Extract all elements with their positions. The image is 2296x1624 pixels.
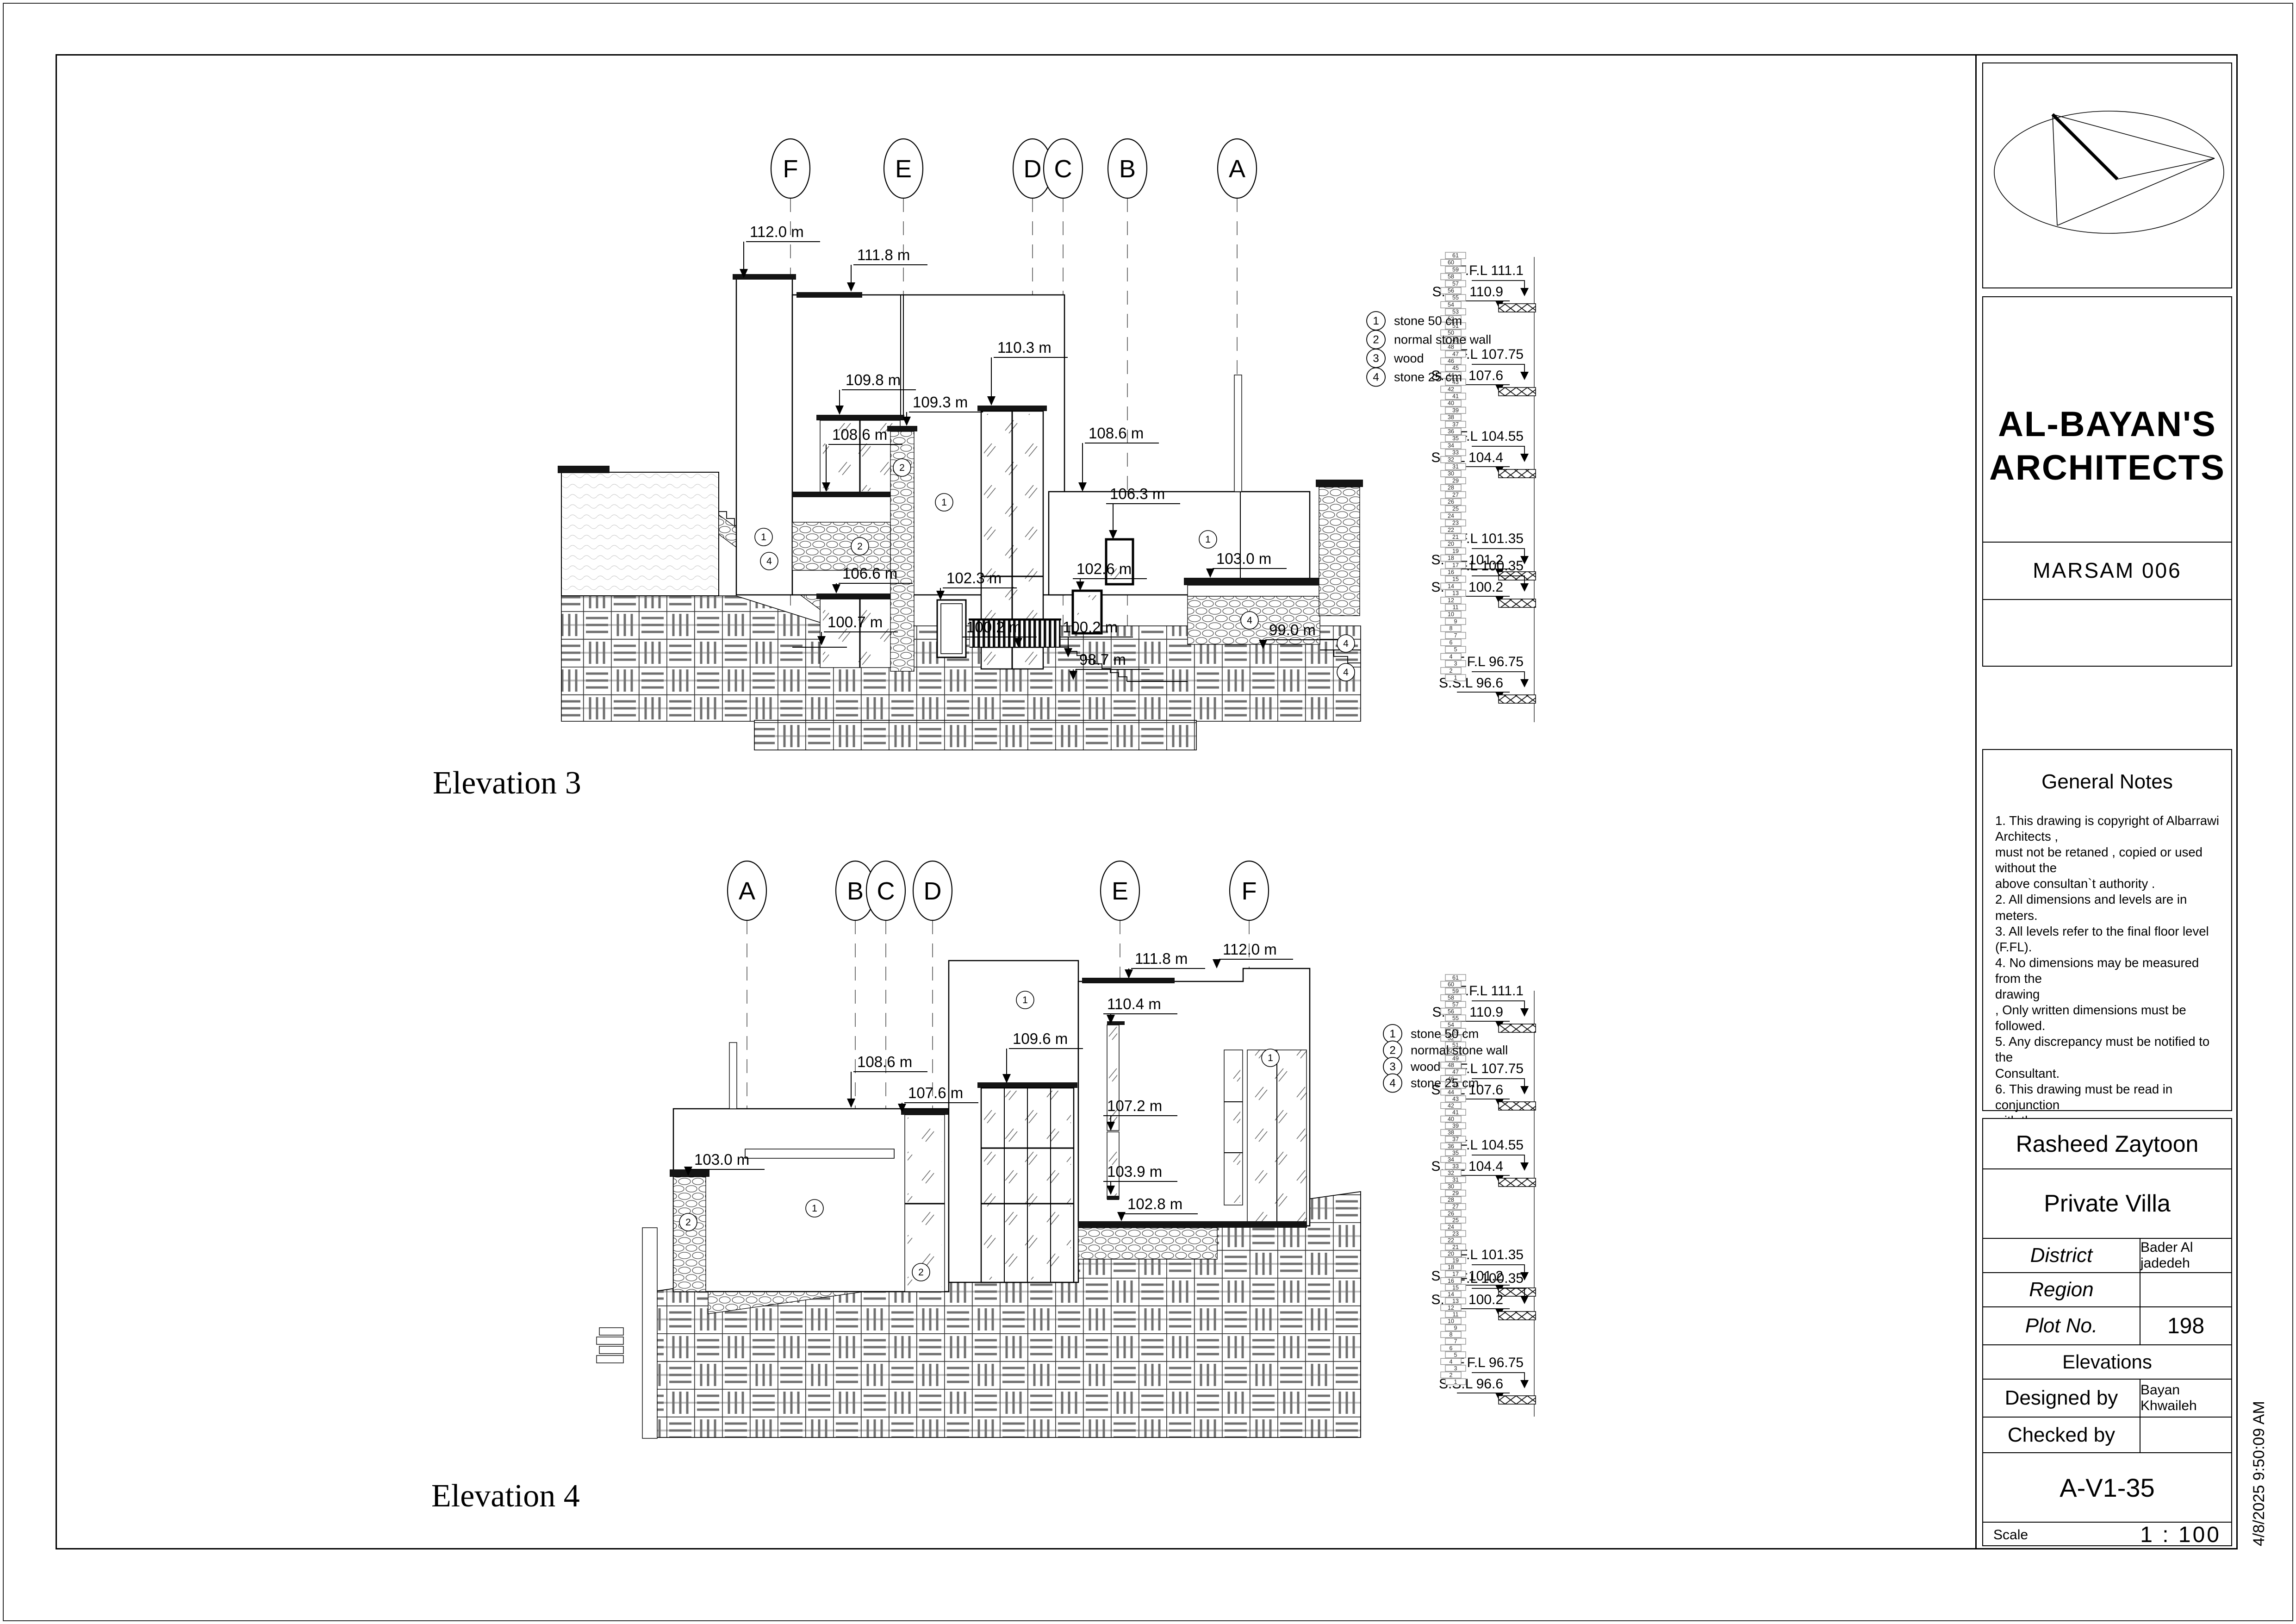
dimension-arrow — [847, 282, 855, 292]
riser-number: 47 — [1452, 351, 1459, 357]
sheet-title-row: Elevations — [1983, 1344, 2231, 1379]
riser-number: 57 — [1452, 1001, 1459, 1008]
dimension-arrow — [1125, 969, 1133, 979]
slab-hatch — [1499, 1288, 1536, 1296]
riser-number: 36 — [1448, 1143, 1454, 1149]
riser-number: 10 — [1448, 611, 1454, 618]
divider — [1983, 599, 2231, 600]
elevation3-title: Elevation 3 — [433, 765, 581, 802]
riser-number: 1 — [1454, 675, 1457, 681]
riser-number: 56 — [1448, 1008, 1454, 1015]
title-block: AL-BAYAN'S ARCHITECTS MARSAM 006 General… — [1975, 54, 2238, 1549]
riser-number: 22 — [1448, 527, 1454, 533]
riser-number: 16 — [1448, 1278, 1454, 1284]
riser-number: 21 — [1452, 534, 1459, 540]
riser-number: 11 — [1453, 604, 1459, 611]
project-name: Private Villa — [2044, 1190, 2171, 1218]
riser-number: 26 — [1448, 499, 1454, 505]
district-label: District — [1983, 1239, 2140, 1272]
ffl-arrow — [1520, 1162, 1529, 1171]
drawing-number-row: A-V1-35 — [1983, 1452, 2231, 1522]
legend-key-number: 2 — [1373, 334, 1379, 346]
riser-number: 26 — [1448, 1210, 1454, 1217]
print-timestamp: 4/8/2025 9:50:09 AM — [2250, 1401, 2268, 1546]
dimension-label: 108.6 m — [1089, 425, 1144, 442]
riser-number: 37 — [1452, 421, 1459, 428]
ffl-arrow — [1520, 1380, 1529, 1388]
riser-number: 6 — [1450, 639, 1453, 646]
dimension-label: 106.6 m — [842, 565, 897, 582]
dimension-label: 98.7 m — [1079, 651, 1126, 668]
grid-bubble-label: B — [847, 877, 864, 905]
elev4-building — [670, 961, 1310, 1292]
dimension-label: 102.6 m — [1076, 560, 1132, 577]
dimension-label: 103.9 m — [1107, 1163, 1162, 1180]
riser-number: 38 — [1448, 414, 1454, 421]
elev3-door — [937, 600, 966, 657]
legend-label: stone 50 cm — [1411, 1027, 1479, 1041]
riser-number: 17 — [1452, 1271, 1459, 1277]
riser-number: 5 — [1454, 1352, 1457, 1358]
firm-name-line1: AL-BAYAN'S — [1983, 403, 2231, 446]
legend-key-number: 4 — [1373, 371, 1379, 384]
grid-bubble-label: A — [1229, 155, 1245, 183]
grid-bubble-label: C — [877, 877, 895, 905]
slab-hatch — [1499, 1312, 1536, 1320]
riser-number: 57 — [1452, 281, 1459, 287]
dimension-label: 109.6 m — [1013, 1030, 1068, 1047]
firm-name: AL-BAYAN'S ARCHITECTS — [1983, 403, 2231, 490]
ffl-label: F.F.L 111.1 — [1458, 983, 1524, 999]
riser-number: 32 — [1448, 456, 1454, 463]
riser-number: 3 — [1454, 1365, 1457, 1372]
riser-number: 54 — [1448, 301, 1454, 308]
elevation4-title: Elevation 4 — [431, 1478, 580, 1515]
riser-number: 59 — [1452, 266, 1459, 273]
material-tag-number: 2 — [918, 1267, 924, 1278]
riser-number: 55 — [1452, 1015, 1459, 1021]
riser-number: 42 — [1448, 386, 1454, 393]
slab-hatch — [1499, 304, 1536, 312]
dimension-label: 102.8 m — [1127, 1195, 1182, 1212]
dimension-label: 112.0 m — [750, 223, 804, 240]
grid-bubble-label: C — [1054, 155, 1072, 183]
elev3-stone-band — [792, 522, 890, 570]
riser-number: 35 — [1452, 1149, 1459, 1156]
material-tag-number: 2 — [685, 1217, 691, 1228]
legend-key-number: 4 — [1389, 1077, 1395, 1090]
ffl-arrow — [1520, 1008, 1529, 1017]
riser-number: 61 — [1452, 252, 1459, 259]
riser-number: 39 — [1452, 407, 1459, 413]
riser-number: 35 — [1452, 435, 1459, 442]
grid-bubble-label: F — [1242, 877, 1257, 905]
riser-number: 27 — [1452, 1204, 1459, 1210]
grid-bubble-label: B — [1119, 155, 1136, 183]
slab-hatch — [1499, 695, 1536, 703]
riser-number: 3 — [1454, 661, 1457, 667]
slab-hatch — [1499, 387, 1536, 396]
riser-number: 55 — [1452, 294, 1459, 301]
riser-number: 30 — [1448, 470, 1454, 477]
slab-hatch — [1499, 1178, 1536, 1187]
riser-number: 28 — [1448, 1197, 1454, 1203]
scale-row: Scale 1 : 100 — [1983, 1522, 2231, 1547]
riser-number: 11 — [1453, 1312, 1459, 1318]
dimension-label: 102.3 m — [946, 569, 1002, 587]
riser-number: 6 — [1450, 1345, 1453, 1351]
riser-number: 9 — [1454, 1325, 1457, 1331]
riser-number: 29 — [1452, 1190, 1459, 1197]
dimension-label: 110.4 m — [1107, 995, 1161, 1012]
riser-number: 25 — [1452, 1217, 1459, 1224]
riser-number: 27 — [1452, 492, 1459, 498]
dimension-label: 112.0 m — [1223, 941, 1277, 958]
designed-by-label: Designed by — [1983, 1380, 2140, 1417]
info-table: Rasheed Zaytoon Private Villa District B… — [1982, 1118, 2232, 1546]
ffl-arrow — [1520, 288, 1529, 296]
riser-number: 17 — [1452, 562, 1459, 568]
elev3-window-a-header — [816, 415, 904, 420]
riser-number: 5 — [1454, 646, 1457, 653]
material-tag-number: 1 — [1268, 1053, 1273, 1063]
ffl-label: F.F.L 96.75 — [1456, 654, 1524, 669]
dimension-label: 103.0 m — [694, 1151, 749, 1168]
legend-label: normal stone wall — [1411, 1043, 1508, 1057]
riser-number: 18 — [1448, 1264, 1454, 1271]
material-tag-number: 1 — [812, 1203, 817, 1214]
riser-number: 58 — [1448, 995, 1454, 1001]
general-notes-title: General Notes — [1983, 770, 2231, 793]
riser-number: 23 — [1452, 1230, 1459, 1237]
material-tag-number: 1 — [761, 532, 766, 543]
riser-number: 18 — [1448, 555, 1454, 562]
riser-number: 1 — [1454, 1379, 1457, 1385]
legend-label: wood — [1394, 351, 1424, 365]
riser-number: 61 — [1452, 974, 1459, 981]
riser-number: 41 — [1452, 1109, 1459, 1116]
riser-number: 34 — [1448, 442, 1454, 449]
material-tag-number: 1 — [1022, 995, 1028, 1006]
riser-number: 30 — [1448, 1183, 1454, 1190]
dimension-label: 99.0 m — [1269, 621, 1316, 638]
dimension-label: 110.3 m — [997, 339, 1052, 356]
material-tag-number: 2 — [857, 541, 863, 552]
region-label: Region — [1983, 1273, 2140, 1306]
dimension-label: 107.6 m — [908, 1084, 963, 1101]
riser-number: 36 — [1448, 428, 1454, 435]
material-tag-number: 4 — [1343, 667, 1349, 678]
riser-number: 60 — [1448, 981, 1454, 988]
riser-number: 24 — [1448, 1224, 1454, 1230]
riser-number: 28 — [1448, 485, 1454, 491]
district-row: District Bader Al jadedeh — [1983, 1238, 2231, 1272]
riser-number: 14 — [1448, 1291, 1454, 1298]
material-tag-number: 4 — [766, 556, 772, 567]
riser-number: 38 — [1448, 1130, 1454, 1136]
slab-hatch — [1499, 599, 1536, 607]
slab-hatch — [1499, 1102, 1536, 1110]
riser-number: 9 — [1454, 618, 1457, 625]
riser-number: 34 — [1448, 1156, 1454, 1163]
ffl-arrow — [1520, 583, 1529, 592]
riser-number: 20 — [1448, 541, 1454, 547]
riser-number: 12 — [1448, 597, 1454, 604]
riser-number: 19 — [1452, 1257, 1459, 1264]
slab-hatch — [1499, 469, 1536, 478]
checked-by-label: Checked by — [1983, 1418, 2140, 1452]
grid-bubble-label: F — [783, 155, 798, 183]
firm-box: AL-BAYAN'S ARCHITECTS MARSAM 006 — [1982, 296, 2232, 667]
slab-hatch — [1499, 1024, 1536, 1032]
riser-number: 48 — [1448, 1062, 1454, 1068]
riser-number: 58 — [1448, 274, 1454, 280]
ffl-arrow — [1520, 454, 1529, 462]
riser-number: 56 — [1448, 287, 1454, 294]
dimension-arrow — [847, 1099, 855, 1108]
ffl-arrow — [1520, 1296, 1529, 1304]
riser-number: 29 — [1452, 477, 1459, 484]
plot-value: 198 — [2140, 1307, 2231, 1344]
legend-key-number: 1 — [1389, 1028, 1395, 1040]
riser-number: 41 — [1452, 393, 1459, 400]
riser-number: 10 — [1448, 1318, 1454, 1324]
slab-hatch — [1499, 1396, 1536, 1404]
checked-by-value — [2140, 1418, 2231, 1452]
riser-number: 13 — [1452, 590, 1459, 597]
elevation4-drawing: 111.8 m112.0 m110.4 m109.6 m108.6 m107.6… — [579, 856, 1550, 1472]
riser-number: 43 — [1452, 1096, 1459, 1102]
elev4-stone-pier — [673, 1177, 706, 1292]
scale-value: 1 : 100 — [2140, 1523, 2221, 1547]
plot-label: Plot No. — [1983, 1307, 2140, 1344]
legend-label: stone 25 cm — [1394, 370, 1462, 384]
riser-number: 13 — [1452, 1298, 1459, 1304]
ffl-label: F.F.L 96.75 — [1456, 1355, 1524, 1370]
dimension-label: 111.8 m — [1135, 950, 1188, 967]
riser-number: 22 — [1448, 1237, 1454, 1243]
riser-number: 16 — [1448, 569, 1454, 575]
riser-number: 20 — [1448, 1251, 1454, 1257]
dimension-label: 111.8 m — [857, 246, 910, 263]
riser-number: 40 — [1448, 1116, 1454, 1123]
riser-number: 33 — [1452, 450, 1459, 456]
riser-number: 15 — [1452, 576, 1459, 582]
dimension-label: 106.3 m — [1110, 485, 1165, 502]
riser-number: 21 — [1452, 1244, 1459, 1250]
legend-label: normal stone wall — [1394, 333, 1491, 347]
riser-number: 32 — [1448, 1170, 1454, 1176]
riser-number: 12 — [1448, 1305, 1454, 1311]
riser-number: 4 — [1450, 653, 1453, 660]
material-tag-number: 1 — [1205, 534, 1211, 545]
riser-number: 15 — [1452, 1284, 1459, 1291]
dimension-label: 109.3 m — [913, 394, 968, 411]
drawing-number: A-V1-35 — [2060, 1473, 2154, 1503]
legend-key-number: 3 — [1373, 352, 1379, 365]
ffl-arrow — [1520, 679, 1529, 687]
riser-number: 46 — [1448, 358, 1454, 364]
legend-key-number: 3 — [1389, 1061, 1395, 1073]
region-row: Region — [1983, 1272, 2231, 1306]
material-tag-number: 2 — [899, 462, 905, 473]
riser-number: 25 — [1452, 506, 1459, 512]
dimension-label: 100.7 m — [828, 613, 883, 631]
designed-by-value: Bayan Khwaileh — [2140, 1380, 2231, 1417]
dimension-label: 100.2 m — [1063, 618, 1118, 636]
dimension-label: 108.6 m — [832, 426, 887, 443]
riser-number: 7 — [1454, 1338, 1457, 1345]
riser-number: 39 — [1452, 1123, 1459, 1129]
compass-logo-icon — [1983, 63, 2231, 287]
riser-number: 2 — [1450, 668, 1453, 674]
legend-label: stone 50 cm — [1394, 314, 1462, 328]
dimension-arrow — [1078, 482, 1087, 492]
riser-number: 8 — [1450, 1331, 1453, 1338]
riser-number: 24 — [1448, 512, 1454, 519]
legend-label: wood — [1410, 1060, 1441, 1074]
checked-by-row: Checked by — [1983, 1417, 2231, 1452]
legend-key-number: 1 — [1373, 315, 1379, 327]
dimension-arrow — [1213, 959, 1221, 968]
ffl-arrow — [1520, 1086, 1529, 1094]
material-tag-number: 1 — [941, 497, 947, 508]
legend-key-number: 2 — [1389, 1044, 1395, 1057]
grid-bubble-label: E — [1112, 877, 1128, 905]
plot-row: Plot No. 198 — [1983, 1306, 2231, 1344]
elevation3-drawing: 112.0 m111.8 m110.3 m109.8 m109.3 m108.6… — [532, 153, 1550, 773]
riser-number: 59 — [1452, 988, 1459, 994]
designed-by-row: Designed by Bayan Khwaileh — [1983, 1379, 2231, 1417]
riser-number: 33 — [1452, 1163, 1459, 1169]
riser-number: 60 — [1448, 259, 1454, 266]
material-tag-number: 4 — [1247, 615, 1252, 626]
riser-number: 31 — [1452, 463, 1459, 470]
riser-number: 40 — [1448, 400, 1454, 406]
legend-label: stone 25 cm — [1411, 1076, 1479, 1090]
dimension-label: 108.6 m — [857, 1053, 912, 1070]
project-code: MARSAM 006 — [1983, 542, 2231, 599]
riser-number: 14 — [1448, 583, 1454, 589]
riser-number: 42 — [1448, 1102, 1454, 1109]
riser-number: 8 — [1450, 625, 1453, 632]
elev3-stone-pier — [1319, 487, 1360, 616]
general-notes-box: General Notes 1. This drawing is copyrig… — [1982, 749, 2232, 1111]
riser-number: 19 — [1452, 548, 1459, 554]
ffl-label: F.F.L 111.1 — [1458, 263, 1524, 278]
riser-number: 23 — [1452, 520, 1459, 526]
region-value — [2140, 1273, 2231, 1306]
scale-label: Scale — [1993, 1523, 2028, 1547]
riser-number: 47 — [1452, 1069, 1459, 1075]
project-row: Private Villa — [1983, 1168, 2231, 1238]
grid-bubble-label: E — [895, 155, 912, 183]
dimension-label: 100.2 m — [966, 618, 1021, 636]
firm-name-line2: ARCHITECTS — [1983, 446, 2231, 490]
riser-number: 37 — [1452, 1136, 1459, 1143]
riser-number: 4 — [1450, 1358, 1453, 1365]
client-row: Rasheed Zaytoon — [1983, 1119, 2231, 1168]
dimension-label: 109.8 m — [846, 371, 901, 388]
grid-bubble-label: A — [739, 877, 755, 905]
riser-number: 2 — [1450, 1372, 1453, 1378]
dimension-label: 103.0 m — [1216, 550, 1271, 567]
district-value: Bader Al jadedeh — [2140, 1239, 2231, 1272]
grid-bubble-label: D — [1024, 155, 1042, 183]
grid-bubble-label: D — [924, 877, 942, 905]
dimension-label: 107.2 m — [1107, 1097, 1162, 1114]
logo-box — [1982, 62, 2232, 288]
elev4-grid-bubbles: ABCDEF — [728, 861, 1269, 920]
sheet-title: Elevations — [2062, 1351, 2152, 1373]
riser-number: 31 — [1452, 1177, 1459, 1183]
client-name: Rasheed Zaytoon — [2016, 1131, 2199, 1157]
material-tag-number: 4 — [1343, 638, 1349, 649]
ffl-arrow — [1520, 372, 1529, 380]
riser-number: 7 — [1454, 632, 1457, 639]
